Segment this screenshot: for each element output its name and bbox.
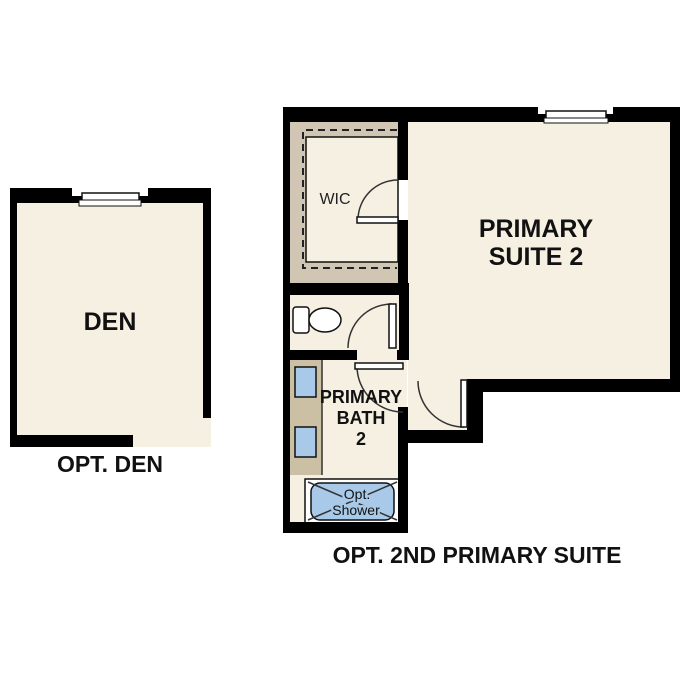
entry-nook-bottom-wall (398, 430, 483, 443)
suite-wall-top (283, 107, 680, 122)
primary-bath-label-line1: PRIMARY (320, 387, 402, 407)
toilet (293, 307, 341, 333)
suite-caption: OPT. 2ND PRIMARY SUITE (333, 542, 622, 568)
toilet-room-top-wall (283, 283, 409, 295)
second-primary-suite-plan: Opt. Shower (283, 107, 680, 568)
floorplan-page: DEN OPT. DEN Opt. Shower (0, 0, 687, 687)
window-sill-outer (544, 118, 608, 123)
suite-wall-left (283, 107, 290, 533)
toilet-room-right-wall (399, 295, 409, 352)
bath-bottom-wall (283, 522, 408, 533)
suite-wall-bottom (477, 379, 680, 392)
shower-label-line2: Shower (332, 502, 380, 518)
shower-label-line1: Opt. (344, 486, 370, 502)
sink-2 (295, 427, 316, 457)
den-room-label: DEN (84, 308, 137, 336)
primary-suite-label-line2: SUITE 2 (489, 243, 583, 271)
door-leaf (355, 363, 403, 369)
door-leaf (389, 304, 396, 348)
toilet-room-bottom-wall (283, 350, 357, 360)
primary-bath-label-line2: BATH (337, 408, 386, 428)
opt-shower: Opt. Shower (305, 479, 400, 523)
suite-wall-right (670, 107, 680, 392)
wic-label: WIC (319, 191, 350, 208)
primary-suite-label-line1: PRIMARY (479, 215, 594, 243)
den-wall-right (203, 188, 211, 418)
den-wall-bottom (10, 435, 133, 447)
primary-bath-label-line3: 2 (356, 429, 366, 449)
wic-suite-wall-upper (398, 122, 408, 180)
floorplan-canvas: DEN OPT. DEN Opt. Shower (0, 0, 687, 687)
toilet-bowl (309, 308, 341, 332)
window-sill-outer (79, 200, 141, 206)
entry-wall-stub (467, 379, 483, 433)
door-leaf (461, 380, 467, 427)
den-plan: DEN OPT. DEN (10, 188, 211, 477)
bath-door-jamb-stub (397, 350, 409, 360)
sink-1 (295, 367, 316, 397)
door-leaf (357, 217, 398, 223)
suite-window (538, 107, 613, 123)
bath-right-wall (398, 407, 408, 533)
toilet-tank (293, 307, 309, 333)
wic-suite-wall-lower (398, 220, 408, 283)
den-window (72, 188, 148, 206)
den-wall-left (10, 188, 17, 447)
den-caption: OPT. DEN (57, 451, 163, 477)
